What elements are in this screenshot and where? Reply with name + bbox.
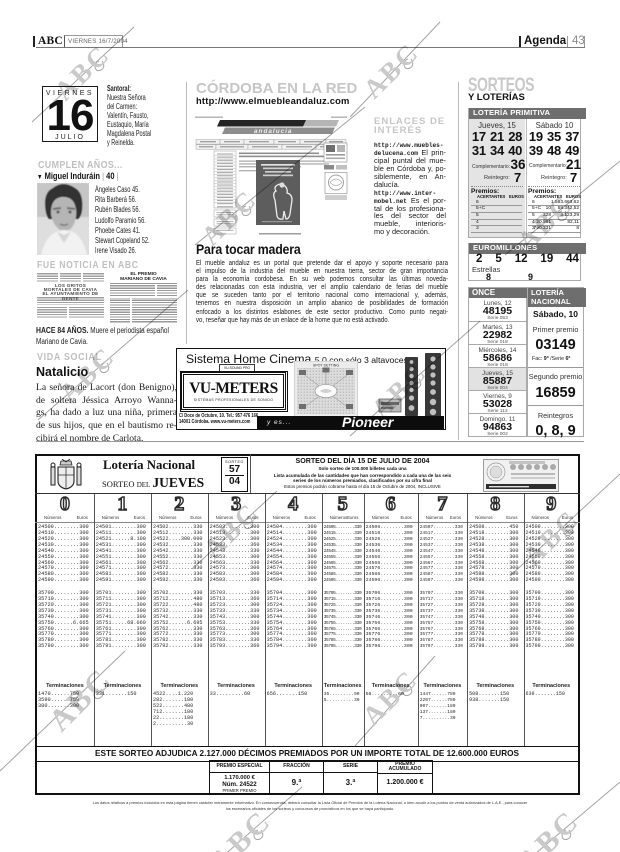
svg-text:ABC: ABC [53,340,121,408]
svg-text:ABC: ABC [517,503,585,571]
svg-text:ABC: ABC [197,496,265,564]
svg-text:ABC: ABC [48,38,116,106]
svg-text:ABC: ABC [204,804,278,852]
svg-text:ABC: ABC [42,661,119,738]
svg-text:ABC: ABC [195,183,263,251]
svg-text:ABC: ABC [511,188,579,256]
svg-text:ABC: ABC [512,804,586,852]
svg-text:ABC: ABC [356,663,424,731]
svg-text:ABC: ABC [365,356,433,424]
svg-text:ABC: ABC [357,36,425,104]
